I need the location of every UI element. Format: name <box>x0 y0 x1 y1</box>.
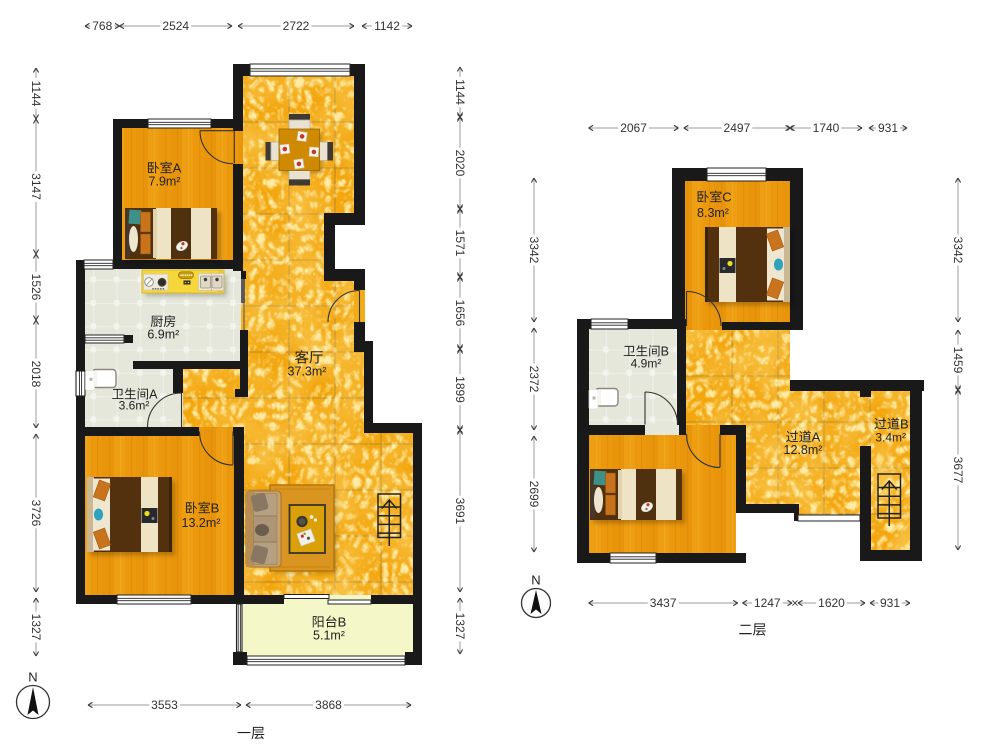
svg-text:3342: 3342 <box>527 237 541 264</box>
svg-text:5.1m²: 5.1m² <box>313 629 345 643</box>
svg-text:A: A <box>173 161 182 176</box>
svg-text:2020: 2020 <box>453 150 467 177</box>
svg-text:B: B <box>338 615 347 630</box>
svg-text:2699: 2699 <box>527 481 541 508</box>
svg-text:3553: 3553 <box>151 698 178 712</box>
svg-text:2524: 2524 <box>162 19 189 33</box>
svg-text:3677: 3677 <box>951 457 965 484</box>
svg-text:2067: 2067 <box>620 121 647 135</box>
svg-text:1526: 1526 <box>29 274 43 301</box>
svg-text:N: N <box>531 573 540 588</box>
svg-text:7.9m²: 7.9m² <box>149 175 181 189</box>
svg-text:2372: 2372 <box>527 366 541 393</box>
svg-text:3.6m²: 3.6m² <box>119 399 150 413</box>
svg-text:4.9m²: 4.9m² <box>631 357 662 371</box>
svg-text:6.9m²: 6.9m² <box>147 328 179 342</box>
svg-text:768: 768 <box>92 19 112 33</box>
svg-text:1620: 1620 <box>818 596 845 610</box>
svg-text:1899: 1899 <box>453 376 467 403</box>
svg-text:1571: 1571 <box>453 230 467 257</box>
svg-text:3691: 3691 <box>453 498 467 525</box>
svg-text:8.3m²: 8.3m² <box>697 206 729 220</box>
svg-text:3726: 3726 <box>29 500 43 527</box>
svg-text:1144: 1144 <box>453 79 467 105</box>
svg-text:931: 931 <box>880 596 900 610</box>
svg-text:1327: 1327 <box>29 614 43 641</box>
svg-text:3868: 3868 <box>315 698 342 712</box>
svg-text:1740: 1740 <box>813 121 840 135</box>
svg-text:C: C <box>722 190 731 205</box>
svg-text:B: B <box>661 345 669 359</box>
svg-text:1327: 1327 <box>453 613 467 640</box>
svg-text:1247: 1247 <box>754 596 781 610</box>
svg-text:1656: 1656 <box>453 300 467 327</box>
svg-text:1144: 1144 <box>29 81 43 107</box>
svg-text:A: A <box>149 388 158 402</box>
svg-text:3147: 3147 <box>29 173 43 200</box>
svg-text:13.2m²: 13.2m² <box>182 516 221 530</box>
svg-text:1459: 1459 <box>951 347 965 374</box>
svg-text:N: N <box>28 670 37 685</box>
svg-text:B: B <box>900 417 909 432</box>
svg-text:3342: 3342 <box>951 237 965 264</box>
svg-text:12.8m²: 12.8m² <box>784 443 823 457</box>
svg-text:3437: 3437 <box>650 596 677 610</box>
svg-text:931: 931 <box>878 121 898 135</box>
svg-text:3.4m²: 3.4m² <box>875 431 906 445</box>
svg-text:1142: 1142 <box>374 19 400 33</box>
svg-text:B: B <box>211 501 220 516</box>
svg-text:2722: 2722 <box>283 19 310 33</box>
svg-text:2497: 2497 <box>724 121 751 135</box>
svg-text:37.3m²: 37.3m² <box>288 365 327 379</box>
svg-text:2018: 2018 <box>29 361 43 388</box>
